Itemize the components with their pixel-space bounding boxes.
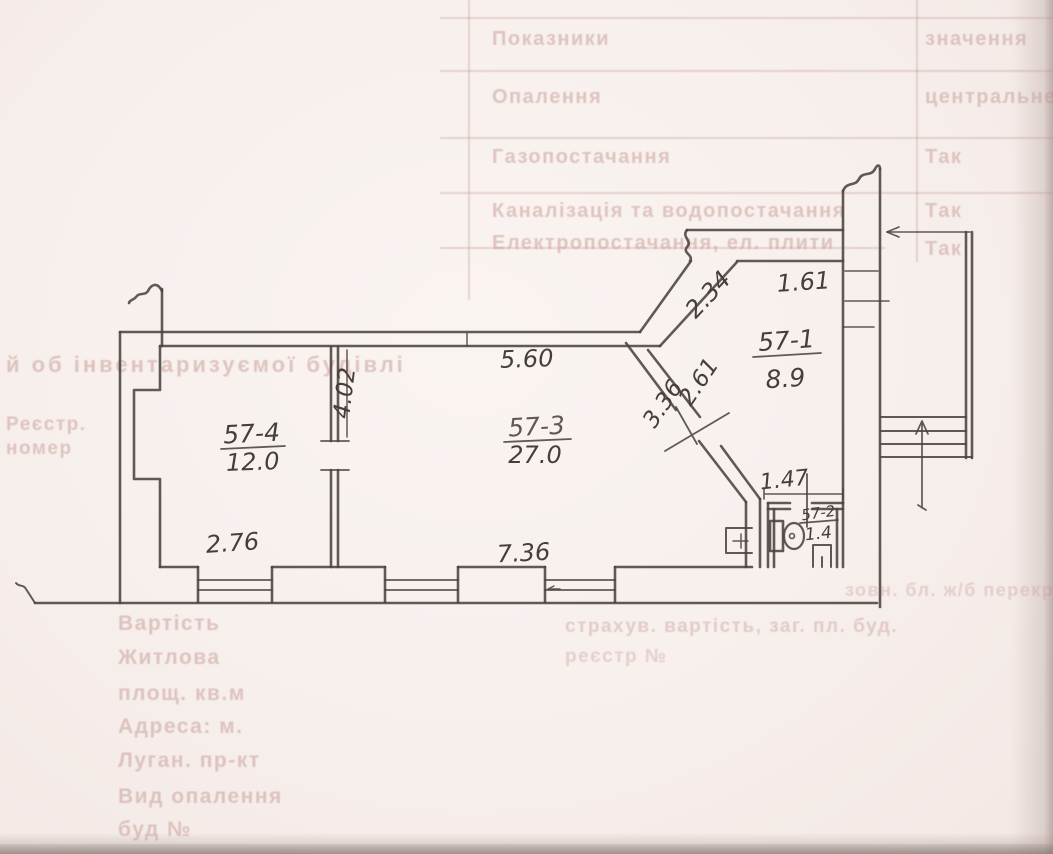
dim-1-61: 1.61 (776, 266, 831, 298)
stairs-up-arrow-icon (916, 421, 928, 510)
window-symbol (545, 567, 615, 602)
dim-2-61: 2.61 (674, 354, 724, 411)
room-57-1-number: 57-1 (757, 324, 816, 357)
dim-7-36: 7.36 (496, 538, 551, 569)
wall-break-icon (129, 285, 162, 303)
scanned-floor-plan-page: { "page": { "kind": "scanned technical p… (0, 0, 1053, 854)
room-57-3-number: 57-3 (507, 411, 565, 443)
dim-3-36: 3.36 (638, 376, 688, 433)
room-57-4-area: 12.0 (226, 447, 280, 477)
dim-5-60: 5.60 (500, 344, 554, 374)
room-57-3-area: 27.0 (508, 441, 561, 469)
room-57-2-area: 1.4 (804, 523, 833, 546)
wall-break-icon (16, 583, 35, 603)
wall-break-icon (685, 230, 691, 261)
scan-bottom-shadow (0, 844, 1053, 854)
window-symbol (385, 567, 458, 602)
scan-right-shadow (1045, 0, 1053, 854)
room-57-4-number: 57-4 (222, 418, 280, 450)
wall-break-icon (843, 166, 880, 191)
floor-plan-drawing: 57-4 12.0 57-3 27.0 57-1 8.9 57-2 1.4 5.… (0, 0, 1053, 854)
staircase (881, 227, 972, 510)
wc-corner-box (813, 545, 831, 567)
sink-icon (726, 528, 752, 553)
dim-4-02: 4.02 (329, 366, 361, 420)
dim-1-47: 1.47 (759, 466, 810, 496)
window-symbol (198, 567, 272, 602)
room-57-1-area: 8.9 (765, 363, 807, 395)
dim-2-76: 2.76 (205, 527, 260, 559)
